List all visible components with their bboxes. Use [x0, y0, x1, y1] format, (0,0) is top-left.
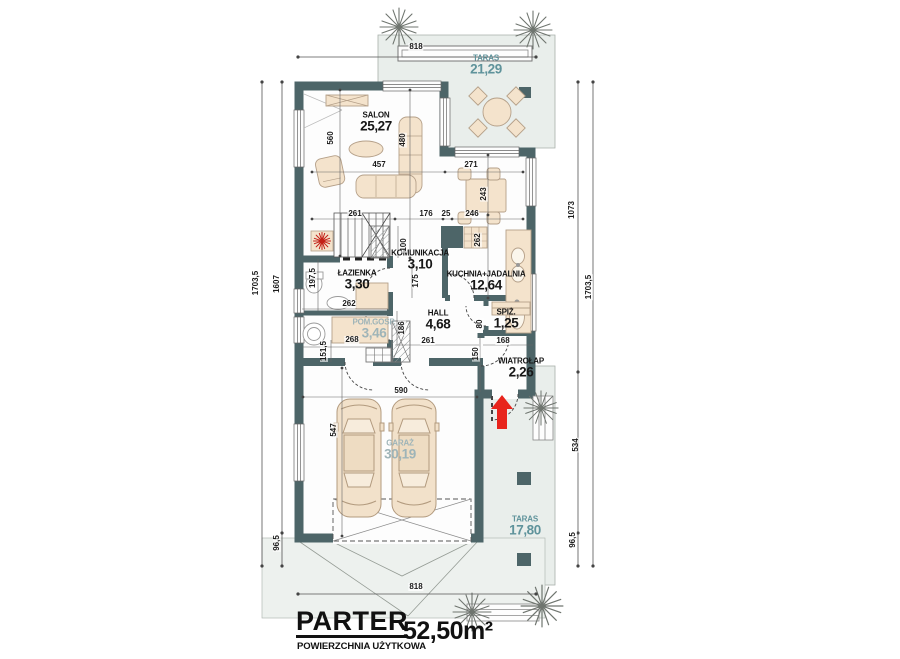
- armchair: [314, 155, 345, 189]
- terrace-post: [517, 472, 531, 485]
- garage-door-opening: [333, 531, 471, 544]
- sofa: [356, 175, 416, 198]
- pantry-shelf: [492, 302, 530, 315]
- plant-icon: [380, 8, 418, 46]
- chair: [458, 212, 471, 224]
- chair: [458, 168, 471, 180]
- washing-machine: [303, 323, 325, 345]
- dining-table: [466, 179, 506, 212]
- coffee-table: [349, 141, 383, 157]
- floor-plan-page: TARAS21,29SALON25,27KOMUNIKACJA3,10ŁAZIE…: [0, 0, 900, 659]
- terrace-table: [483, 98, 511, 126]
- red-plant-icon: [313, 232, 330, 249]
- floor-plan-drawing: [0, 0, 900, 659]
- plant-icon: [453, 593, 491, 631]
- chair: [487, 168, 500, 180]
- red-plant: [311, 231, 333, 251]
- washbasin: [327, 297, 349, 310]
- plant-icon: [524, 391, 558, 425]
- chair: [487, 212, 500, 224]
- plant-icon: [521, 585, 563, 627]
- car: [389, 399, 439, 517]
- sink: [512, 248, 525, 264]
- utility-counter: [332, 317, 388, 343]
- sink: [512, 266, 525, 282]
- entrance-opening: [492, 388, 518, 399]
- shower: [356, 283, 388, 309]
- kitchen-island: [441, 226, 463, 248]
- car: [334, 399, 384, 517]
- planter-box: [398, 46, 532, 61]
- stove: [464, 227, 487, 248]
- terrace-post: [517, 553, 531, 566]
- plant-icon: [514, 11, 552, 49]
